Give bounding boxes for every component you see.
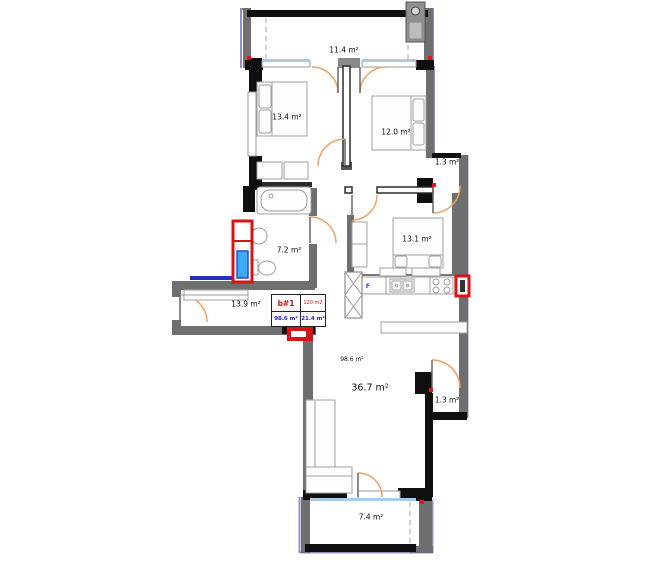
dresser-left (257, 162, 308, 179)
plumbing-shaft (233, 221, 252, 282)
total-area-cell: 120 m2 (301, 295, 325, 312)
chimney (406, 2, 425, 42)
label-balcony-top: 11.4 m² (329, 46, 358, 54)
label-balcony-bottom: 7.4 m² (359, 513, 384, 521)
label-hallway: 13.9 m² (231, 300, 260, 308)
pipe-line (190, 276, 234, 280)
dining-table (381, 322, 467, 333)
label-living-room: 36.7 m² (351, 383, 388, 393)
indoor-area-cell: 98.6 m² (272, 312, 301, 326)
vent-shaft-hatched (345, 272, 362, 318)
bed-left (257, 82, 307, 136)
label-bedroom-mid: 13.1 m² (402, 235, 431, 243)
stove (430, 277, 453, 294)
label-fridge: F (366, 283, 370, 290)
toilet (250, 260, 276, 275)
label-indoor-total: 98.6 m² (340, 357, 364, 363)
label-bedroom-right: 12.0 m² (381, 128, 410, 136)
floor-plan: 11.4 m² 13.4 m² 12.0 m² 1.3 m² 7.2 m² 13… (0, 0, 669, 563)
sofa (306, 400, 352, 493)
floor-plan-drawing (0, 0, 669, 563)
label-loggia-upper: 1.3 m² (435, 158, 460, 166)
unit-id-cell: b#1 (272, 295, 301, 312)
label-loggia-lower: 1.3 m² (435, 396, 460, 404)
outdoor-area-cell: 21.4 m² (301, 312, 325, 326)
bed-middle (380, 218, 443, 276)
radiator (456, 276, 469, 296)
bed-right (372, 96, 426, 150)
label-bedroom-left: 13.4 m² (272, 113, 301, 121)
shelf-middle-room (352, 222, 367, 267)
bathtub (257, 187, 311, 214)
electric-panel (287, 327, 313, 341)
kitchen-sink (390, 279, 414, 292)
label-bathroom: 7.2 m² (277, 246, 302, 254)
unit-info-table: b#1 120 m2 98.6 m² 21.4 m² (271, 294, 326, 327)
